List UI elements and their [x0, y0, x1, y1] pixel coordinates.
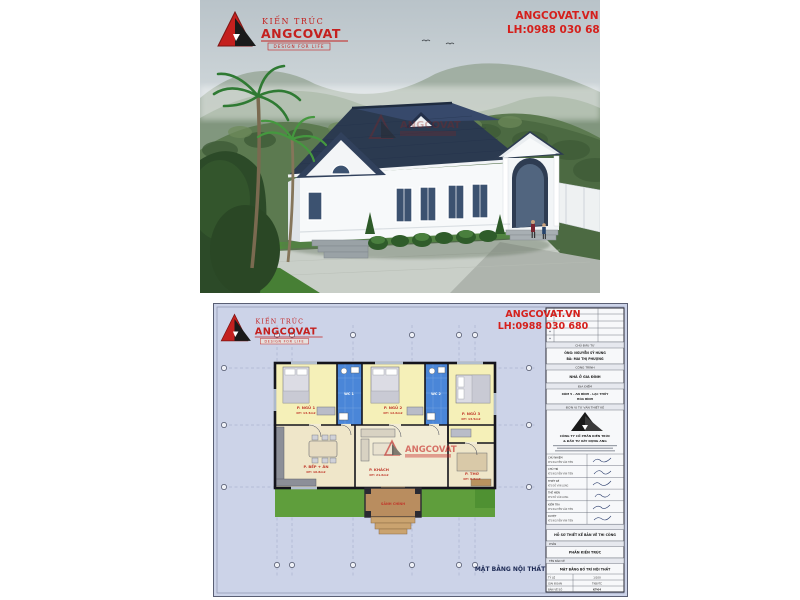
house-plan — [275, 363, 495, 534]
brand-line2: ANGCOVAT — [255, 327, 317, 338]
title-block: CHỦ ĐẦU TƯ ÔNG: NGUYỄN SỸ HÙNG BÀ: MAI T… — [546, 308, 624, 592]
brand-line1: KIẾN TRÚC — [256, 318, 305, 326]
project-label: CÔNG TRÌNH — [575, 364, 594, 369]
svg-text:KTS NGUYỄN VĂN TIÊN: KTS NGUYỄN VĂN TIÊN — [548, 520, 573, 523]
investor-label: CHỦ ĐẦU TƯ — [575, 342, 595, 347]
svg-text:KTS ĐỖ VĂN LONG: KTS ĐỖ VĂN LONG — [548, 496, 569, 499]
kitchen-label: P. BẾP + ĂN — [303, 463, 328, 469]
roof-watermark: ANGCOVAT — [370, 116, 461, 138]
svg-text:KTS ĐỖ VĂN LONG: KTS ĐỖ VĂN LONG — [548, 484, 569, 487]
bedroom2-label: P. NGỦ 2 — [384, 405, 403, 410]
project-value: NHÀ Ở GIA ĐÌNH — [569, 374, 600, 379]
location-2: HÒA BÌNH — [577, 396, 594, 401]
contact-website: ANGCOVAT.VN — [515, 10, 598, 22]
company-address-lines — [553, 445, 617, 451]
drawing-label: MẶT BẰNG NỘI THẤT — [475, 565, 546, 573]
wc1-label: WC 1 — [344, 392, 354, 396]
investor-1: ÔNG: NGUYỄN SỸ HÙNG — [564, 350, 606, 355]
brand-tagline: DESIGN FOR LIFE — [265, 340, 305, 344]
svg-text:KTS NGUYỄN VĂN TIÊN: KTS NGUYỄN VĂN TIÊN — [548, 508, 573, 511]
contact-website: ANGCOVAT.VN — [505, 309, 580, 320]
bedroom3-label: P. NGỦ 3 — [462, 411, 481, 416]
living-label: P. KHÁCH — [369, 467, 389, 472]
page: ANGCOVAT KIẾN TRÚC ANGCOVAT DESIGN FOR L… — [0, 0, 800, 600]
location-1: XÓM 5 - AN BÌNH - LẠC THỦY — [562, 391, 610, 396]
brand-tagline: DESIGN FOR LIFE — [273, 44, 324, 49]
plan-contact-info: ANGCOVAT.VN LH:0988 030 680 — [498, 309, 589, 332]
exterior-render-image: ANGCOVAT KIẾN TRÚC ANGCOVAT DESIGN FOR L… — [200, 0, 600, 293]
bedroom1-label: P. NGỦ 1 — [297, 405, 316, 410]
bedroom2-area: DT: 12.6m2 — [383, 411, 402, 415]
brand-line1: KIẾN TRÚC — [262, 16, 324, 26]
plan-watermark-text: ANGCOVAT — [405, 445, 457, 455]
porch-label: SẢNH CHÍNH — [381, 501, 405, 506]
svg-text:KTS NGUYỄN VĂN TIÊN: KTS NGUYỄN VĂN TIÊN — [548, 461, 573, 464]
contact-phone: LH:0988 030 680 — [507, 24, 600, 36]
worship-area: DT: 9.6m2 — [463, 477, 480, 481]
sheet-value: KT-04 — [593, 587, 601, 591]
location-label: ĐỊA ĐIỂM — [578, 383, 592, 388]
contact-phone: LH:0988 030 680 — [498, 321, 589, 332]
living-area: DT: 21.6m2 — [369, 473, 388, 477]
worship-label: P. THỜ — [465, 471, 480, 476]
svg-text:KTS NGUYỄN VĂN TIÊN: KTS NGUYỄN VĂN TIÊN — [548, 473, 573, 476]
wc2-label: WC 2 — [431, 392, 441, 396]
floor-plan-sheet: ANGCOVAT P. NGỦ 1 DT: 13.3m2 WC 1 P. NGỦ… — [213, 303, 628, 597]
brand-line2: ANGCOVAT — [261, 26, 341, 41]
bedroom3-area: DT: 13.5m2 — [461, 417, 480, 421]
investor-2: BÀ: MAI THỊ PHƯỢNG — [566, 356, 603, 361]
stage-label: GIAI ĐOẠN — [548, 581, 562, 585]
kitchen-area: DT: 16.8m2 — [306, 470, 325, 474]
bedroom1-area: DT: 13.3m2 — [296, 411, 315, 415]
drawing-name: MẶT BẰNG BỐ TRÍ NỘI THẤT — [560, 567, 611, 572]
company-2: & ĐẦU TƯ XÂY DỰNG ANG — [563, 438, 607, 443]
stage-value: TKBVTC — [592, 581, 602, 585]
scale-value: 1/100 — [593, 575, 601, 579]
watermark-text: ANGCOVAT — [400, 120, 461, 131]
